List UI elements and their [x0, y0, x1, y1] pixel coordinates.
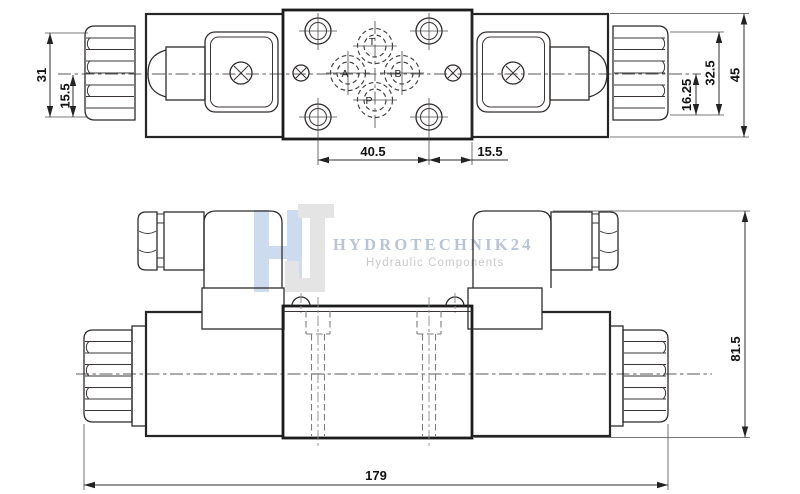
body-screw-right-icon: [445, 65, 461, 81]
left-connector-screw-icon: [230, 62, 252, 84]
right-solenoid-top-view: [472, 14, 668, 137]
mounting-hole: [410, 98, 448, 165]
mounting-hole: [410, 13, 448, 50]
body-screw-left-icon: [293, 65, 309, 81]
dim-nut-height: 31: [34, 68, 49, 82]
right-cable-gland: [599, 212, 618, 270]
valve-body-front-view: [283, 293, 472, 447]
watermark: HYDROTECHNIK24 Hydraulic Components: [254, 204, 534, 292]
left-solenoid-top-view: [85, 14, 283, 137]
valve-technical-drawing: HYDROTECHNIK24 Hydraulic Components: [0, 0, 800, 494]
top-view: T A B P: [34, 10, 749, 165]
valve-body-top-view: T A B P: [283, 10, 472, 165]
dim-nut-half-height: 15.5: [58, 83, 73, 108]
right-solenoid-front-view: [468, 288, 668, 436]
watermark-tagline-text: Hydraulic Components: [366, 257, 504, 269]
right-knurl-ridges-front: [624, 342, 666, 411]
top-view-centerlines: [58, 21, 701, 128]
watermark-brand-text: HYDROTECHNIK24: [333, 235, 534, 254]
mounting-hole: [299, 13, 337, 50]
right-connector-screw-icon: [502, 62, 524, 84]
top-view-dimensions: 31 15.5 40.5 15.5 16.25 32.5 45: [34, 14, 749, 166]
port-label-b: B: [394, 68, 401, 80]
hidden-bolt-hole-left: [306, 297, 330, 447]
port-label-p: P: [365, 95, 372, 107]
left-knurl-ridges-top: [86, 38, 134, 108]
port-b: [380, 51, 424, 95]
port-label-t: T: [369, 36, 376, 48]
left-solenoid-front-view: [84, 288, 284, 436]
mounting-hole: [299, 98, 337, 165]
dim-hole-spacing: 40.5: [360, 144, 385, 159]
dim-center-to-flat: 16.25: [679, 79, 694, 112]
dim-body-height: 45: [728, 68, 743, 82]
port-label-a: A: [341, 68, 348, 80]
left-knurl-ridges-front: [85, 342, 131, 411]
dim-hole-edge-offset: 15.5: [477, 144, 502, 159]
dim-overall-length: 179: [365, 468, 387, 483]
dim-flats-height: 32.5: [703, 60, 718, 85]
left-cable-gland: [138, 212, 157, 270]
dim-overall-height: 81.5: [728, 336, 743, 361]
technical-drawing-page: HYDROTECHNIK24 Hydraulic Components: [0, 0, 800, 494]
hidden-bolt-hole-right: [417, 297, 441, 447]
right-knurl-ridges-top: [614, 38, 665, 108]
